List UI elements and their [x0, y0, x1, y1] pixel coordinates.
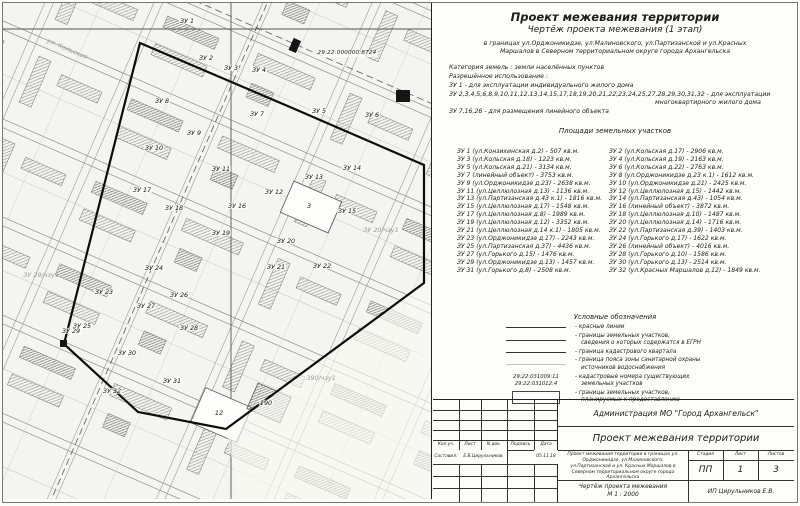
legend-text-line: источников водоснабжения [575, 365, 700, 373]
stage-label: Стадия [688, 450, 723, 460]
legend-item: 29:22:031009:1129:22:031012:4- кадастров… [497, 374, 789, 389]
area-item: ЗУ 17 (ул.Целлюлозная д.8) - 1989 кв.м. [457, 211, 602, 219]
parcel-label: 390/чзу1 [305, 375, 336, 381]
parcel-label: ЗУ 13 [304, 174, 324, 180]
legend-text-line: - границы земельных участков, [575, 333, 701, 341]
parcel-label: ЗУ 31 [162, 378, 182, 384]
area-item: ЗУ 2 (ул.Кольская д.17) - 2906 кв.м. [609, 148, 761, 156]
parcel-label: 3 [306, 203, 312, 209]
author-name: ИП Цирульников Е.В. [688, 480, 794, 502]
composed-name: Е.В.Цирульников [459, 450, 507, 464]
legend-text-line: земельных участков [575, 381, 689, 389]
col-header-data: Дата [534, 440, 558, 450]
parcel-label: 190 [259, 400, 273, 406]
parcel-label: ЗУ 22 [312, 263, 332, 269]
cadastral-number-label: 29:22:000000:8724 [317, 51, 378, 57]
legend-heading: Условные обозначения [433, 313, 797, 321]
survey-sheet: ЗУ 1ЗУ 2ЗУ 3ЗУ 4ЗУ 5ЗУ 6ЗУ 729:22:000000… [0, 0, 800, 506]
permitted-use-label: Разрешённое использование : [449, 73, 548, 80]
boundary-marker [60, 340, 67, 347]
drawing-scale: М 1 : 2000 [558, 491, 688, 499]
area-item: ЗУ 29 (ул.Орджоникидзе д.13) - 1457 кв.м… [457, 259, 602, 267]
col-header-koluch: Кол.уч. [433, 440, 459, 450]
parcel-label: ЗУ 27 [136, 303, 156, 309]
area-item: ЗУ 15 (ул.Целлюлозная д.17) - 1548 кв.м. [457, 203, 602, 211]
area-item: ЗУ 23 (ул.Орджоникидзе д.17) - 2243 кв.м… [457, 235, 602, 243]
use-line-2b: многоквартирного жилого дома [655, 99, 761, 106]
sheets-value: 3 [758, 460, 794, 480]
info-panel: Проект межевания территории Чертёж проек… [433, 3, 797, 503]
area-item: ЗУ 32 (ул.Красных Маршалов д.12) - 1849 … [609, 267, 761, 275]
legend-item-text: - граница пояса зоны санитарной охраныис… [575, 357, 700, 372]
stage-value: ПП [688, 460, 723, 480]
area-item: ЗУ 31 (ул.Горького д.8) - 2508 кв.м. [457, 267, 602, 275]
legend-text-line: - граница кадастрового квартала [575, 349, 676, 357]
legend-cadastral-number: 29:22:031009:11 [513, 374, 559, 381]
boundary-line-1: в границах ул.Орджоникидзе, ул.Малиновск… [433, 40, 797, 47]
area-item: ЗУ 10 (ул.Орджоникидзе д.21) - 2425 кв.м… [609, 180, 761, 188]
parcel-label: ЗУ 8 [154, 98, 170, 104]
parcel-label: ЗУ 16 [227, 203, 247, 209]
cadastral-map: ЗУ 1ЗУ 2ЗУ 3ЗУ 4ЗУ 5ЗУ 6ЗУ 729:22:000000… [3, 3, 432, 499]
parcel-label: ЗУ 20 [276, 238, 296, 244]
area-item: ЗУ 12 (ул.Целлюлозная д.15) - 1442 кв.м. [609, 188, 761, 196]
composed-label: Составил: [433, 450, 459, 464]
parcel-label: ЗУ 11 [211, 166, 231, 172]
area-item: ЗУ 8 (ул.Орджоникидзе д.23 к.1) - 1612 к… [609, 172, 761, 180]
title-block: Кол.уч. Лист N док. Подпись Дата Состави… [433, 399, 794, 503]
area-item: ЗУ 25 (ул.Партизанская д.37) - 4436 кв.м… [457, 243, 602, 251]
parcel-label: ЗУ 9 [186, 130, 202, 136]
legend-symbol-line [497, 327, 575, 328]
legend-item-text: - граница кадастрового квартала [575, 349, 676, 357]
area-item: ЗУ 27 (ул.Горького д.15) - 1476 кв.м. [457, 251, 602, 259]
area-item: ЗУ 3 (ул.Кольская д.18) - 1223 кв.м. [457, 156, 602, 164]
page-subtitle: Чертёж проекта межевания (1 этап) [433, 25, 797, 35]
page-title: Проект межевания территории [433, 10, 797, 24]
area-item: ЗУ 21 (ул.Целлюлозная д.14 к.1) - 1805 к… [457, 227, 602, 235]
parcel-label: ЗУ 12 [264, 189, 284, 195]
area-item: ЗУ 18 (ул.Целлюлозная д.10) - 1487 кв.м. [609, 211, 761, 219]
area-item: ЗУ 22 (ул.Партизанская д.39) - 1403 кв.м… [609, 227, 761, 235]
sheet-value: 1 [723, 460, 758, 480]
legend-item: - граница кадастрового квартала [497, 349, 789, 357]
legend-symbol-line-light [497, 364, 575, 365]
areas-heading: Площади земельных участков [433, 127, 797, 135]
drawing-name: Чертёж проекта межевания [558, 483, 688, 491]
legend-line-swatch [506, 327, 566, 328]
parcel-label: ЗУ 28 [179, 325, 199, 331]
legend-line-swatch [506, 340, 566, 341]
area-item: ЗУ 11 (ул.Целлюлозная д.13) - 1136 кв.м. [457, 188, 602, 196]
area-item: ЗУ 5 (ул.Кольская д.21) - 3134 кв.м. [457, 164, 602, 172]
area-item: ЗУ 6 (ул.Кольская д.22) - 2763 кв.м. [609, 164, 761, 172]
parcel-label: ЗУ 10 [144, 145, 164, 151]
legend: - красные линии- границы земельных участ… [497, 324, 789, 406]
area-item: ЗУ 20 (ул.Целлюлозная д.14) - 1716 кв.м. [609, 219, 761, 227]
parcel-label: ЗУ 30 [117, 350, 137, 356]
boundary-marker [396, 90, 410, 102]
area-item: ЗУ 28 (ул.Горького д.10) - 1586 кв.м. [609, 251, 761, 259]
col-header-ndoc: N док. [481, 440, 507, 450]
legend-text-line: сведения о которых содержатся в ЕГРН [575, 340, 701, 348]
parcel-label: ЗУ 7 [249, 111, 265, 117]
legend-symbol-line [497, 340, 575, 341]
parcel-label: ЗУ 1 [179, 18, 195, 24]
composed-date: 05.11.18 [534, 450, 558, 464]
legend-line-swatch [506, 364, 566, 365]
parcel-label: ЗУ 4 [251, 67, 267, 73]
area-item: ЗУ 4 (ул.Кольская д.19) - 2163 кв.м. [609, 156, 761, 164]
legend-cadastral-number: 29:22:031012:4 [515, 381, 557, 388]
organization-name: Администрация МО "Город Архангельск" [558, 400, 794, 426]
cadastral-map-svg [3, 3, 431, 499]
legend-item: - граница пояса зоны санитарной охраныис… [497, 357, 789, 372]
use-line-2: ЗУ 2,3,4,5,6,8,9,10,11,12,13,14,15,17,18… [449, 91, 770, 98]
col-header-list: Лист [459, 440, 481, 450]
parcel-label: ЗУ 6 [364, 112, 380, 118]
area-item: ЗУ 1 (ул.Конзихинская д.2) - 507 кв.м. [457, 148, 602, 156]
legend-symbol-line [497, 352, 575, 353]
parcel-label: ЗУ 14 [342, 165, 362, 171]
parcel-label: ЗУ 5 [311, 108, 327, 114]
parcel-label: ЗУ 29 [61, 328, 81, 334]
parcel-label: ЗУ 2 [198, 55, 214, 61]
signature-table: Кол.уч. Лист N док. Подпись Дата Состави… [433, 400, 558, 502]
parcel-label: ЗУ 26 [169, 292, 189, 298]
parcel-label: ЗУ 21 [266, 264, 286, 270]
sheets-label: Листов [758, 450, 794, 460]
legend-text-line: - кадастровые номера существующих [575, 374, 689, 382]
legend-item-text: - красные линии [575, 324, 624, 332]
legend-item-text: - границы земельных участков,сведения о … [575, 333, 701, 348]
area-item: ЗУ 7 (линейный объект) - 3753 кв.м. [457, 172, 602, 180]
parcel-label: ЗУ 23 [94, 289, 114, 295]
area-item: ЗУ 16 (линейный объект) - 3872 кв.м. [609, 203, 761, 211]
areas-col-left: ЗУ 1 (ул.Конзихинская д.2) - 507 кв.м.ЗУ… [457, 148, 602, 275]
parcel-label: ЗУ 29/чзу1 [22, 272, 59, 278]
boundary-line-2: Маршалов в Северном территориальном окру… [433, 48, 797, 55]
legend-item: - границы земельных участков,сведения о … [497, 333, 789, 348]
areas-col-right: ЗУ 2 (ул.Кольская д.17) - 2906 кв.м.ЗУ 4… [609, 148, 761, 275]
area-item: ЗУ 24 (ул.Горького д.17) - 1622 кв.м. [609, 235, 761, 243]
document-title: Проект межевания территории [558, 426, 794, 450]
legend-item-text: - кадастровые номера существующихземельн… [575, 374, 689, 389]
sheet-label: Лист [723, 450, 758, 460]
area-item: ЗУ 26 (линейный объект) - 4016 кв.м. [609, 243, 761, 251]
parcel-label: ЗУ 19 [211, 230, 231, 236]
area-item: ЗУ 19 (ул.Целлюлозная д.12) - 3352 кв.м. [457, 219, 602, 227]
parcel-label: ЗУ 15 [337, 208, 357, 214]
area-item: ЗУ 9 (ул.Орджоникидзе д.23) - 2638 кв.м. [457, 180, 602, 188]
parcel-label: ЗУ 32 [102, 388, 122, 394]
area-item: ЗУ 30 (ул.Горького д.13) - 2514 кв.м. [609, 259, 761, 267]
project-description: Проект межевания территории в границах у… [558, 450, 688, 480]
parcel-label: 12 [214, 410, 224, 416]
parcel-label: ЗУ 17 [132, 187, 152, 193]
parcel-label: ЗУ 3 [223, 65, 239, 71]
use-line-3: ЗУ 7,16,26 - для размещения линейного об… [449, 108, 609, 115]
legend-symbol-cadnums: 29:22:031009:1129:22:031012:4 [497, 374, 575, 388]
legend-text-line: - границы земельных участков, [575, 390, 680, 398]
legend-text-line: - красные линии [575, 324, 624, 332]
col-header-podpis: Подпись [507, 440, 534, 450]
legend-line-swatch [506, 352, 566, 353]
drawing-name-cell: Чертёж проекта межевания М 1 : 2000 [558, 480, 688, 502]
area-item: ЗУ 13 (ул.Партизанская д.43 к.1) - 1816 … [457, 195, 602, 203]
parcel-label: ЗУ 24 [144, 265, 164, 271]
land-category: Категория земель : земли населённых пунк… [449, 64, 604, 71]
parcel-label: ЗУ 18 [164, 205, 184, 211]
use-line-1: ЗУ 1 - для эксплуатации индивидуального … [449, 82, 633, 89]
legend-text-line: - граница пояса зоны санитарной охраны [575, 357, 700, 365]
parcel-label: ЗУ 20/чзу1 [362, 227, 399, 233]
legend-item: - красные линии [497, 324, 789, 332]
